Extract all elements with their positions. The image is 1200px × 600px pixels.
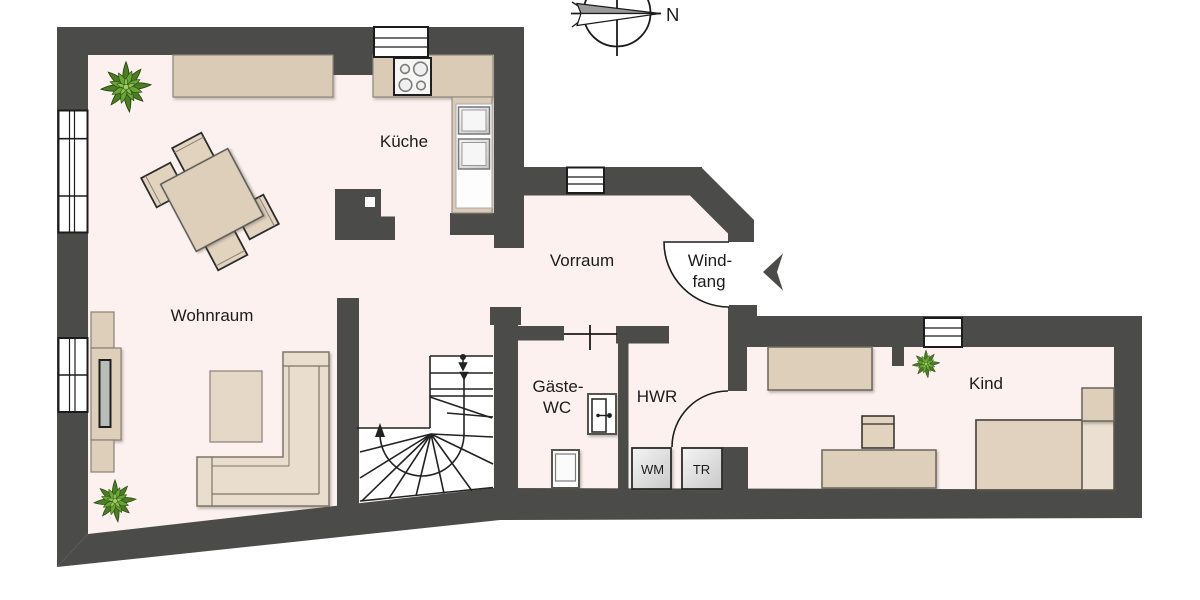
svg-text:Kind: Kind — [969, 374, 1003, 393]
svg-text:WM: WM — [641, 462, 664, 477]
svg-text:Gäste-: Gäste- — [532, 377, 583, 396]
svg-text:Wind-: Wind- — [688, 251, 732, 270]
svg-text:TR: TR — [693, 462, 710, 477]
svg-text:Vorraum: Vorraum — [550, 251, 614, 270]
svg-text:HWR: HWR — [637, 387, 678, 406]
svg-text:fang: fang — [692, 272, 725, 291]
svg-text:Wohnraum: Wohnraum — [171, 306, 254, 325]
svg-text:WC: WC — [543, 398, 571, 417]
svg-text:Küche: Küche — [380, 132, 428, 151]
svg-text:N: N — [666, 4, 679, 25]
